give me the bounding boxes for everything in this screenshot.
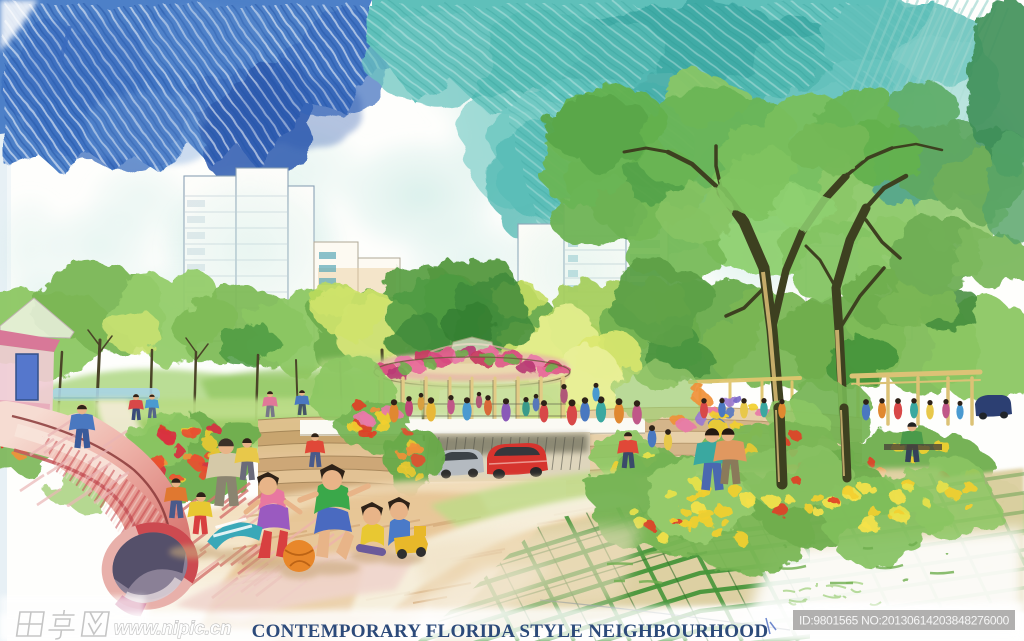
svg-text:CONTEMPORARY FLORIDA STYLE NEI: CONTEMPORARY FLORIDA STYLE NEIGHBOURHOOD <box>252 621 769 641</box>
svg-text:ID:9801565 NO:2013061420384827: ID:9801565 NO:20130614203848276000 <box>799 614 1010 628</box>
svg-text:www.nipic.cn: www.nipic.cn <box>114 617 232 638</box>
